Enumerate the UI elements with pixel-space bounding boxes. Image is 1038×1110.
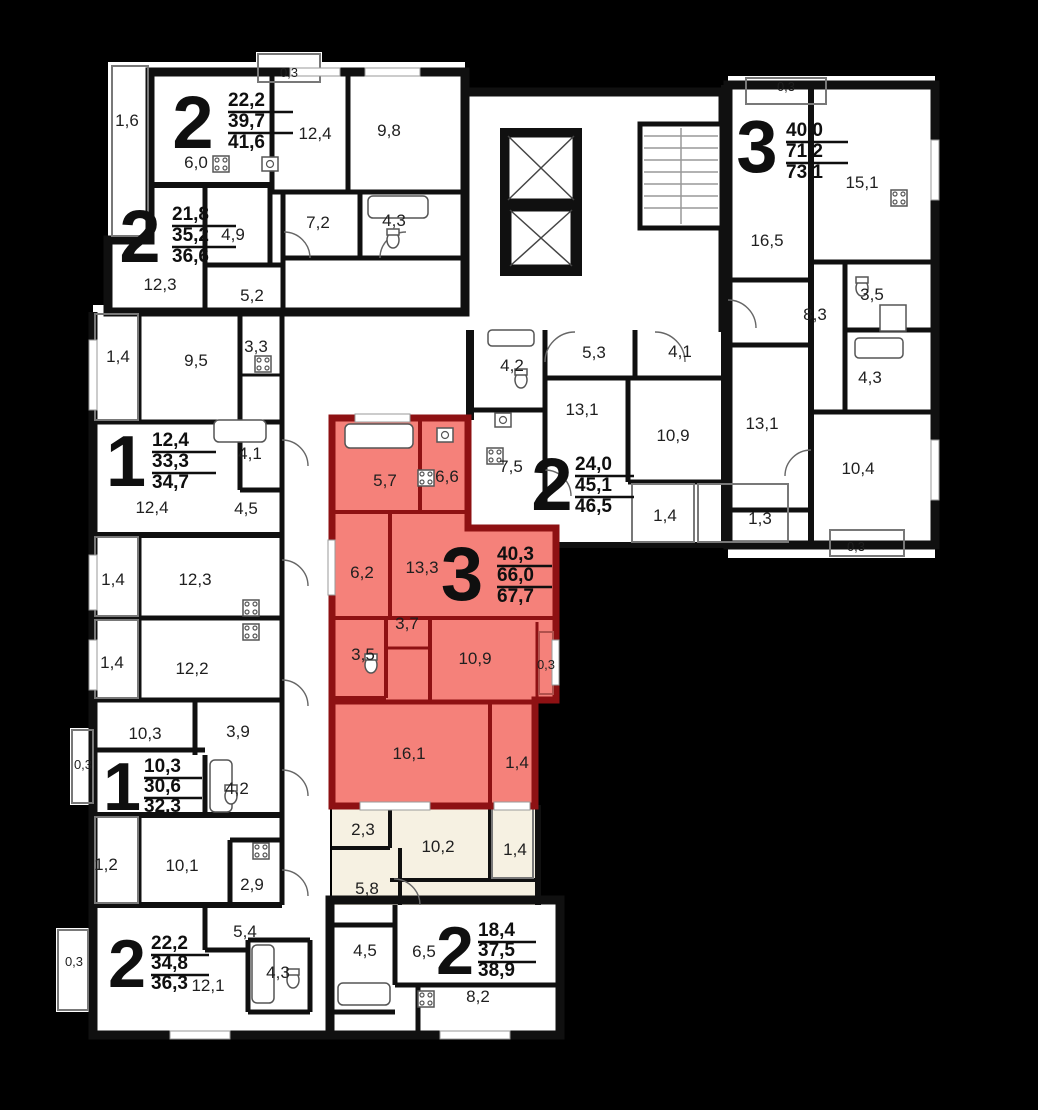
room-area: 3,5 (860, 285, 884, 304)
stove-icon (243, 624, 259, 640)
room-area: 1,6 (115, 111, 139, 130)
svg-text:24,0: 24,0 (575, 454, 612, 475)
elevator-icon (508, 136, 574, 200)
svg-text:40,3: 40,3 (497, 544, 534, 565)
room-area: 12,4 (298, 124, 331, 143)
bathtub-icon (855, 338, 903, 358)
svg-text:33,3: 33,3 (152, 451, 189, 472)
svg-text:71,2: 71,2 (786, 141, 823, 162)
svg-text:40,0: 40,0 (786, 120, 823, 141)
room-area: 0,3 (280, 65, 298, 80)
room-area: 7,2 (306, 213, 330, 232)
room-area: 12,3 (178, 570, 211, 589)
room-area: 10,1 (165, 856, 198, 875)
room-area: 8,3 (803, 305, 827, 324)
shower-icon (880, 305, 906, 331)
room-area: 13,1 (745, 414, 778, 433)
room-area: 6,6 (435, 467, 459, 486)
room-area: 10,2 (421, 837, 454, 856)
svg-text:34,7: 34,7 (152, 472, 189, 493)
svg-text:46,5: 46,5 (575, 496, 612, 517)
svg-text:66,0: 66,0 (497, 565, 534, 586)
room-area: 4,5 (353, 941, 377, 960)
sink-icon (437, 428, 453, 442)
room-area: 13,3 (405, 558, 438, 577)
svg-text:2: 2 (108, 926, 146, 1002)
room-area: 9,5 (184, 351, 208, 370)
room-area: 1,4 (653, 506, 677, 525)
bathtub-icon (345, 424, 413, 448)
room-area: 15,1 (845, 173, 878, 192)
staircase-icon (640, 124, 722, 228)
room-area: 10,9 (656, 426, 689, 445)
svg-text:2: 2 (119, 195, 160, 278)
room-area: 3,5 (351, 645, 375, 664)
floor-plan: 1,6 0,3 12,4 9,8 6,0 4,9 7,2 4,3 12,3 5,… (0, 0, 1038, 1110)
room-area: 5,3 (582, 343, 606, 362)
room-area: 2,9 (240, 875, 264, 894)
stove-icon (253, 843, 269, 859)
bathtub-icon (214, 420, 266, 442)
svg-text:12,4: 12,4 (152, 430, 189, 451)
svg-text:41,6: 41,6 (228, 132, 265, 153)
room-area: 4,3 (266, 963, 290, 982)
room-area: 5,7 (373, 471, 397, 490)
svg-text:32,3: 32,3 (144, 796, 181, 817)
room-area: 16,1 (392, 744, 425, 763)
stove-icon (418, 991, 434, 1007)
room-area: 4,1 (668, 342, 692, 361)
room-area: 4,3 (382, 211, 406, 230)
room-area: 5,8 (355, 879, 379, 898)
room-area: 10,4 (841, 459, 874, 478)
room-area: 4,2 (500, 356, 524, 375)
room-area: 2,3 (351, 820, 375, 839)
room-area: 4,5 (234, 499, 258, 518)
room-area: 5,2 (240, 286, 264, 305)
room-area: 8,2 (466, 987, 490, 1006)
room-area: 3,9 (226, 722, 250, 741)
room-area: 12,2 (175, 659, 208, 678)
stove-icon (418, 470, 434, 486)
svg-text:3: 3 (441, 532, 483, 617)
svg-text:1: 1 (103, 749, 141, 825)
room-area: 7,5 (499, 457, 523, 476)
room-area: 0,3 (65, 954, 83, 969)
svg-text:35,2: 35,2 (172, 225, 209, 246)
room-area: 1,4 (106, 347, 130, 366)
svg-text:21,8: 21,8 (172, 204, 209, 225)
room-area: 4,1 (238, 444, 262, 463)
svg-text:37,5: 37,5 (478, 940, 515, 961)
room-area: 0,3 (537, 657, 555, 672)
svg-text:1: 1 (106, 422, 146, 502)
room-area: 0,3 (847, 539, 865, 554)
svg-text:2: 2 (436, 913, 474, 989)
room-area: 10,3 (128, 724, 161, 743)
room-area: 3,3 (244, 337, 268, 356)
bathtub-icon (488, 330, 534, 346)
toilet-icon (387, 229, 399, 248)
room-area: 16,5 (750, 231, 783, 250)
room-area: 1,4 (101, 570, 125, 589)
room-area: 1,4 (100, 653, 124, 672)
room-area: 4,2 (225, 779, 249, 798)
sink-icon (495, 413, 511, 427)
room-area: 4,3 (858, 368, 882, 387)
room-area: 0,3 (777, 79, 795, 94)
stove-icon (255, 356, 271, 372)
svg-text:10,3: 10,3 (144, 756, 181, 777)
floor-plan-canvas: 1,6 0,3 12,4 9,8 6,0 4,9 7,2 4,3 12,3 5,… (0, 0, 1038, 1110)
svg-text:2: 2 (172, 81, 213, 164)
svg-text:2: 2 (531, 443, 572, 526)
room-area: 13,1 (565, 400, 598, 419)
stove-icon (891, 190, 907, 206)
room-area: 1,4 (503, 840, 527, 859)
room-area: 5,4 (233, 922, 257, 941)
svg-text:22,2: 22,2 (228, 90, 265, 111)
stove-icon (213, 156, 229, 172)
svg-text:3: 3 (736, 105, 777, 188)
svg-text:45,1: 45,1 (575, 475, 612, 496)
svg-text:67,7: 67,7 (497, 586, 534, 607)
room-area: 0,3 (74, 757, 92, 772)
room-area: 1,3 (748, 509, 772, 528)
bathtub-icon (338, 983, 390, 1005)
stove-icon (243, 600, 259, 616)
svg-text:34,8: 34,8 (151, 953, 188, 974)
room-area: 3,7 (395, 614, 419, 633)
room-area: 10,9 (458, 649, 491, 668)
room-area: 1,4 (505, 753, 529, 772)
elevator-icon-2 (510, 210, 572, 266)
room-area: 6,5 (412, 942, 436, 961)
svg-text:38,9: 38,9 (478, 960, 515, 981)
room-area: 9,8 (377, 121, 401, 140)
svg-text:22,2: 22,2 (151, 933, 188, 954)
room-area: 4,9 (221, 225, 245, 244)
svg-text:36,6: 36,6 (172, 246, 209, 267)
sink-icon (262, 157, 278, 171)
svg-text:36,3: 36,3 (151, 973, 188, 994)
svg-text:73,1: 73,1 (786, 162, 823, 183)
svg-text:39,7: 39,7 (228, 111, 265, 132)
svg-text:30,6: 30,6 (144, 776, 181, 797)
room-area: 6,2 (350, 563, 374, 582)
svg-text:18,4: 18,4 (478, 920, 515, 941)
room-area: 1,2 (94, 855, 118, 874)
room-area: 12,1 (191, 976, 224, 995)
